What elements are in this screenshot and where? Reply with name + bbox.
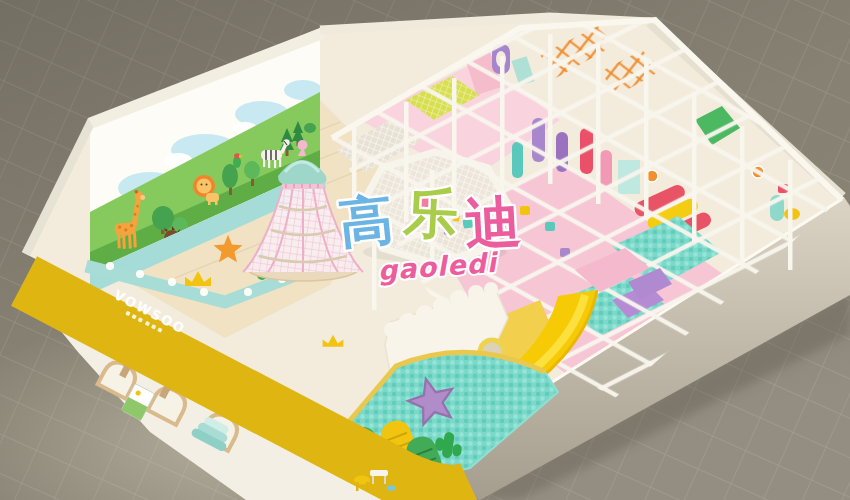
scene-canvas: VOWSOO 高 乐 迪 gaoledi <box>0 0 850 500</box>
kid-stool-blue <box>387 485 396 491</box>
logo-char-2: 乐 <box>401 181 459 247</box>
tower-finial <box>298 140 308 150</box>
logo-char-1: 高 <box>336 187 396 255</box>
playground-render: VOWSOO 高 乐 迪 gaoledi <box>0 0 850 500</box>
